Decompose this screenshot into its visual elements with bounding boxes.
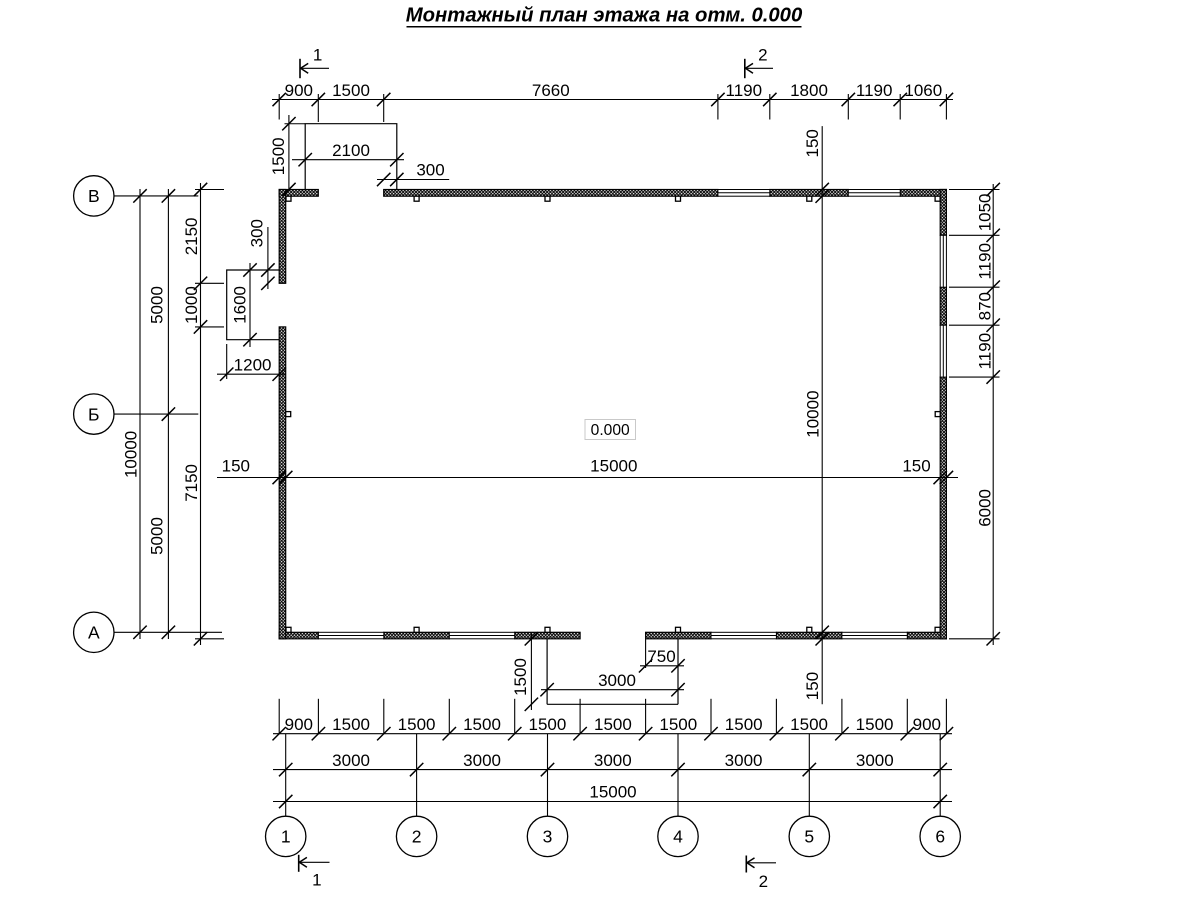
svg-text:1000: 1000 xyxy=(182,286,201,324)
svg-text:3000: 3000 xyxy=(594,751,632,770)
svg-text:150: 150 xyxy=(902,457,930,476)
svg-text:5: 5 xyxy=(804,827,814,847)
svg-text:2: 2 xyxy=(759,872,768,891)
svg-text:3000: 3000 xyxy=(598,671,636,690)
svg-text:10000: 10000 xyxy=(122,431,141,478)
svg-text:Монтажный план этажа на отм. 0: Монтажный план этажа на отм. 0.000 xyxy=(406,5,803,27)
svg-text:300: 300 xyxy=(247,219,266,247)
svg-text:1: 1 xyxy=(281,827,291,847)
svg-text:150: 150 xyxy=(803,129,822,157)
svg-text:5000: 5000 xyxy=(147,286,166,324)
svg-text:1500: 1500 xyxy=(332,81,370,100)
svg-text:15000: 15000 xyxy=(589,783,636,802)
svg-text:2: 2 xyxy=(412,827,422,847)
svg-text:1500: 1500 xyxy=(269,137,288,175)
svg-text:1500: 1500 xyxy=(511,658,530,696)
svg-text:В: В xyxy=(88,186,100,206)
svg-text:1: 1 xyxy=(313,45,322,64)
svg-text:7150: 7150 xyxy=(182,464,201,502)
svg-text:7660: 7660 xyxy=(532,81,570,100)
svg-text:1600: 1600 xyxy=(231,286,250,324)
svg-text:1500: 1500 xyxy=(659,715,697,734)
svg-text:150: 150 xyxy=(803,672,822,700)
svg-text:2100: 2100 xyxy=(332,141,370,160)
svg-text:10000: 10000 xyxy=(803,390,822,437)
svg-text:1500: 1500 xyxy=(856,715,894,734)
svg-text:15000: 15000 xyxy=(590,457,637,476)
svg-text:1500: 1500 xyxy=(332,715,370,734)
svg-text:3000: 3000 xyxy=(725,751,763,770)
svg-text:1050: 1050 xyxy=(975,193,994,231)
svg-text:1500: 1500 xyxy=(463,715,501,734)
svg-text:1190: 1190 xyxy=(975,243,994,280)
svg-text:1800: 1800 xyxy=(790,81,828,100)
svg-text:900: 900 xyxy=(285,81,313,100)
svg-text:1: 1 xyxy=(312,871,321,890)
svg-text:2: 2 xyxy=(758,45,767,64)
svg-text:1500: 1500 xyxy=(594,715,632,734)
svg-text:Б: Б xyxy=(88,404,99,424)
svg-text:3: 3 xyxy=(543,827,553,847)
svg-text:150: 150 xyxy=(222,457,250,476)
svg-text:2150: 2150 xyxy=(182,217,201,255)
svg-text:1500: 1500 xyxy=(790,715,828,734)
svg-text:1500: 1500 xyxy=(398,715,436,734)
svg-text:900: 900 xyxy=(285,715,313,734)
svg-text:1190: 1190 xyxy=(726,81,763,100)
svg-text:1500: 1500 xyxy=(528,715,566,734)
svg-text:4: 4 xyxy=(673,827,683,847)
svg-text:750: 750 xyxy=(647,647,675,666)
svg-text:1190: 1190 xyxy=(856,81,893,100)
svg-text:5000: 5000 xyxy=(147,517,166,555)
svg-text:900: 900 xyxy=(913,715,941,734)
svg-text:1200: 1200 xyxy=(234,355,272,374)
svg-text:6: 6 xyxy=(935,827,945,847)
svg-text:1500: 1500 xyxy=(725,715,763,734)
svg-text:1060: 1060 xyxy=(904,81,942,100)
svg-text:3000: 3000 xyxy=(463,751,501,770)
svg-text:1190: 1190 xyxy=(975,333,994,370)
svg-text:870: 870 xyxy=(975,292,994,320)
svg-text:300: 300 xyxy=(416,161,444,180)
svg-text:3000: 3000 xyxy=(332,751,370,770)
svg-text:А: А xyxy=(88,623,100,643)
svg-text:3000: 3000 xyxy=(856,751,894,770)
svg-text:6000: 6000 xyxy=(975,489,994,527)
svg-text:0.000: 0.000 xyxy=(591,422,630,439)
